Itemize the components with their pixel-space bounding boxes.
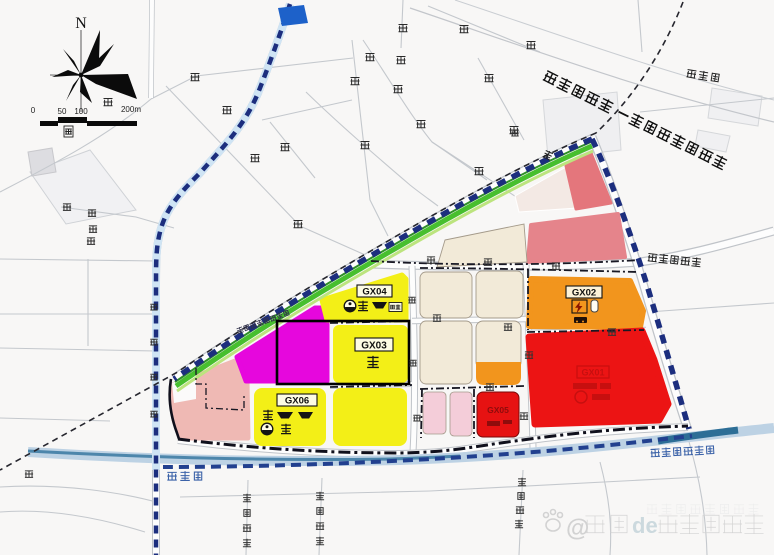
- svg-text:GX04: GX04: [362, 287, 387, 298]
- svg-text:50: 50: [58, 107, 67, 116]
- svg-text:GX03: GX03: [361, 341, 387, 352]
- svg-text:0: 0: [31, 106, 36, 115]
- svg-text:GX01: GX01: [581, 368, 604, 378]
- svg-text:GX06: GX06: [285, 396, 309, 407]
- svg-text:N: N: [75, 15, 87, 32]
- svg-text:@: @: [566, 515, 589, 542]
- svg-text:GX05: GX05: [487, 405, 509, 415]
- svg-text:100: 100: [74, 107, 88, 116]
- svg-text:200m: 200m: [121, 105, 141, 114]
- svg-text:GX02: GX02: [572, 288, 596, 299]
- svg-text:de: de: [632, 513, 658, 538]
